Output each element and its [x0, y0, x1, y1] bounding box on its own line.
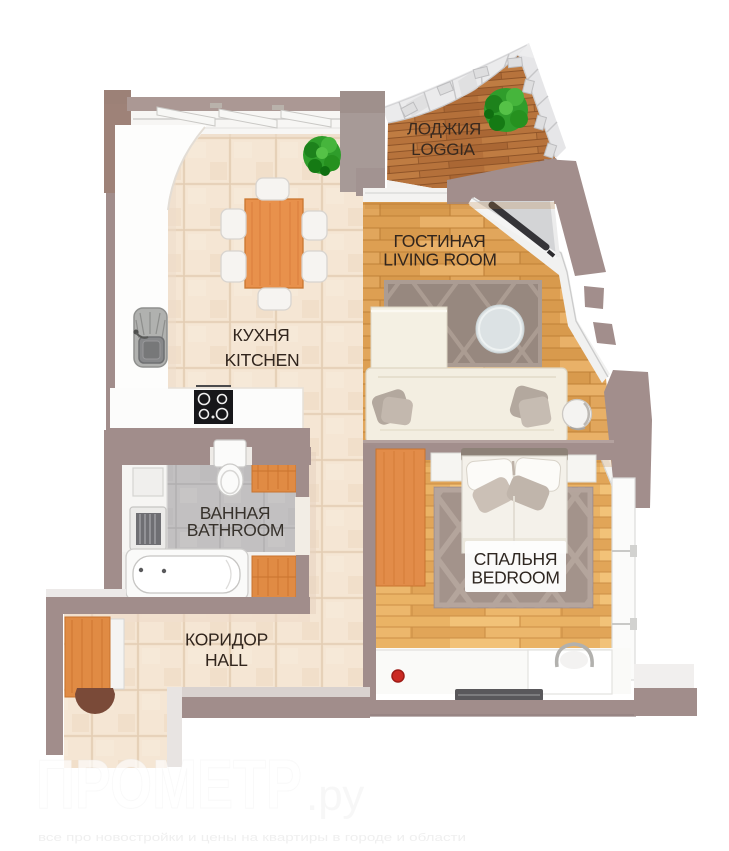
- svg-text:СПАЛЬНЯ: СПАЛЬНЯ: [474, 549, 557, 569]
- svg-text:ЛОДЖИЯ: ЛОДЖИЯ: [407, 120, 481, 139]
- svg-text:.ру: .ру: [306, 771, 364, 820]
- svg-text:KITCHEN: KITCHEN: [225, 350, 300, 370]
- svg-text:все про новостройки и цены на: все про новостройки и цены на квартиры в…: [38, 832, 466, 844]
- svg-text:КОРИДОР: КОРИДОР: [185, 630, 268, 650]
- svg-text:ПРОМЕТР: ПРОМЕТР: [36, 745, 302, 823]
- svg-text:ГОСТИНАЯ: ГОСТИНАЯ: [394, 231, 486, 251]
- svg-text:LIVING ROOM: LIVING ROOM: [383, 250, 496, 270]
- svg-text:КУХНЯ: КУХНЯ: [233, 325, 290, 345]
- svg-text:BEDROOM: BEDROOM: [471, 568, 559, 588]
- svg-text:HALL: HALL: [205, 650, 248, 670]
- svg-text:BATHROOM: BATHROOM: [187, 520, 284, 540]
- svg-text:LOGGIA: LOGGIA: [411, 140, 475, 159]
